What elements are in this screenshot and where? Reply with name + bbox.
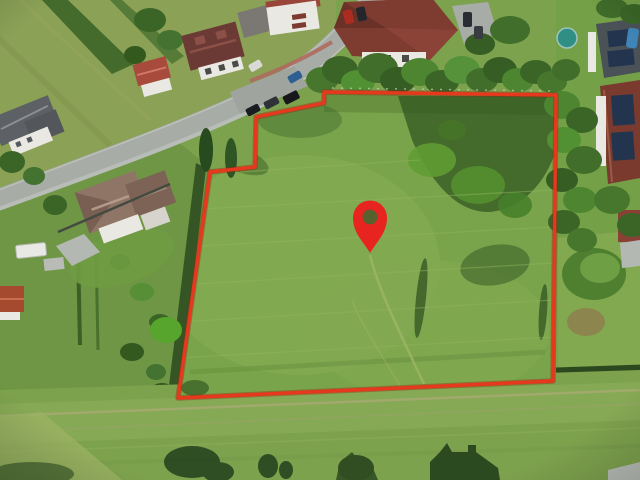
vignette-overlay (0, 0, 640, 480)
aerial-photo: Aerial view of a grassy building plot ou… (0, 0, 640, 480)
aerial-photo-canvas: Aerial view of a grassy building plot ou… (0, 0, 640, 480)
